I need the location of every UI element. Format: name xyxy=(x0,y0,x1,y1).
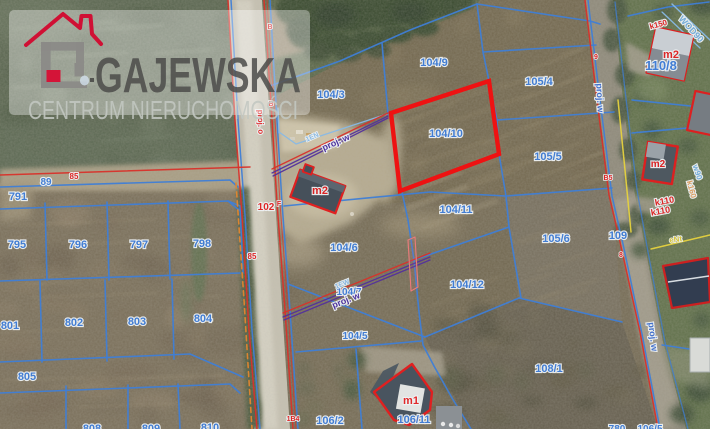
svg-text:104/9: 104/9 xyxy=(420,57,448,69)
svg-text:797: 797 xyxy=(130,239,148,251)
svg-text:104/6: 104/6 xyxy=(330,242,358,254)
svg-text:109: 109 xyxy=(609,230,627,242)
svg-text:eNt: eNt xyxy=(669,234,683,245)
svg-text:108/1: 108/1 xyxy=(535,363,563,375)
svg-text:89: 89 xyxy=(40,177,52,188)
svg-text:104/11: 104/11 xyxy=(439,204,472,216)
svg-text:102: 102 xyxy=(258,202,275,213)
svg-text:m2: m2 xyxy=(312,185,328,197)
svg-text:B5: B5 xyxy=(604,175,613,182)
svg-text:m2: m2 xyxy=(663,49,679,61)
svg-text:808: 808 xyxy=(83,423,101,429)
svg-text:104/5: 104/5 xyxy=(342,331,367,342)
svg-text:106/2: 106/2 xyxy=(316,415,344,427)
svg-text:791: 791 xyxy=(9,191,27,203)
svg-text:802: 802 xyxy=(65,317,83,329)
svg-text:106/5: 106/5 xyxy=(637,424,662,429)
svg-text:CENTRUM NIERUCHOMOŚCI: CENTRUM NIERUCHOMOŚCI xyxy=(28,95,298,125)
svg-text:803: 803 xyxy=(128,316,146,328)
svg-text:104/10: 104/10 xyxy=(429,128,463,140)
svg-text:105/5: 105/5 xyxy=(534,151,562,163)
svg-text:proj. w: proj. w xyxy=(594,83,606,113)
svg-text:105/6: 105/6 xyxy=(542,233,570,245)
svg-text:F: F xyxy=(277,201,282,208)
svg-text:106/11: 106/11 xyxy=(397,414,430,426)
svg-text:801: 801 xyxy=(1,320,19,332)
svg-text:9: 9 xyxy=(594,54,598,61)
svg-text:85: 85 xyxy=(70,172,79,181)
svg-text:796: 796 xyxy=(69,239,87,251)
svg-text:m1: m1 xyxy=(403,395,419,407)
svg-text:809: 809 xyxy=(142,423,160,429)
svg-text:104/12: 104/12 xyxy=(450,279,484,291)
svg-text:8: 8 xyxy=(619,252,623,259)
svg-text:m2: m2 xyxy=(651,159,666,170)
svg-text:780: 780 xyxy=(609,424,626,429)
svg-text:105/4: 105/4 xyxy=(525,76,553,88)
svg-text:805: 805 xyxy=(18,371,36,383)
svg-text:795: 795 xyxy=(8,239,26,251)
svg-text:798: 798 xyxy=(193,238,211,250)
svg-text:104/3: 104/3 xyxy=(317,89,345,101)
svg-text:85: 85 xyxy=(248,252,257,261)
svg-text:1B4: 1B4 xyxy=(287,416,300,423)
svg-text:804: 804 xyxy=(194,313,213,325)
svg-text:810: 810 xyxy=(201,422,219,429)
